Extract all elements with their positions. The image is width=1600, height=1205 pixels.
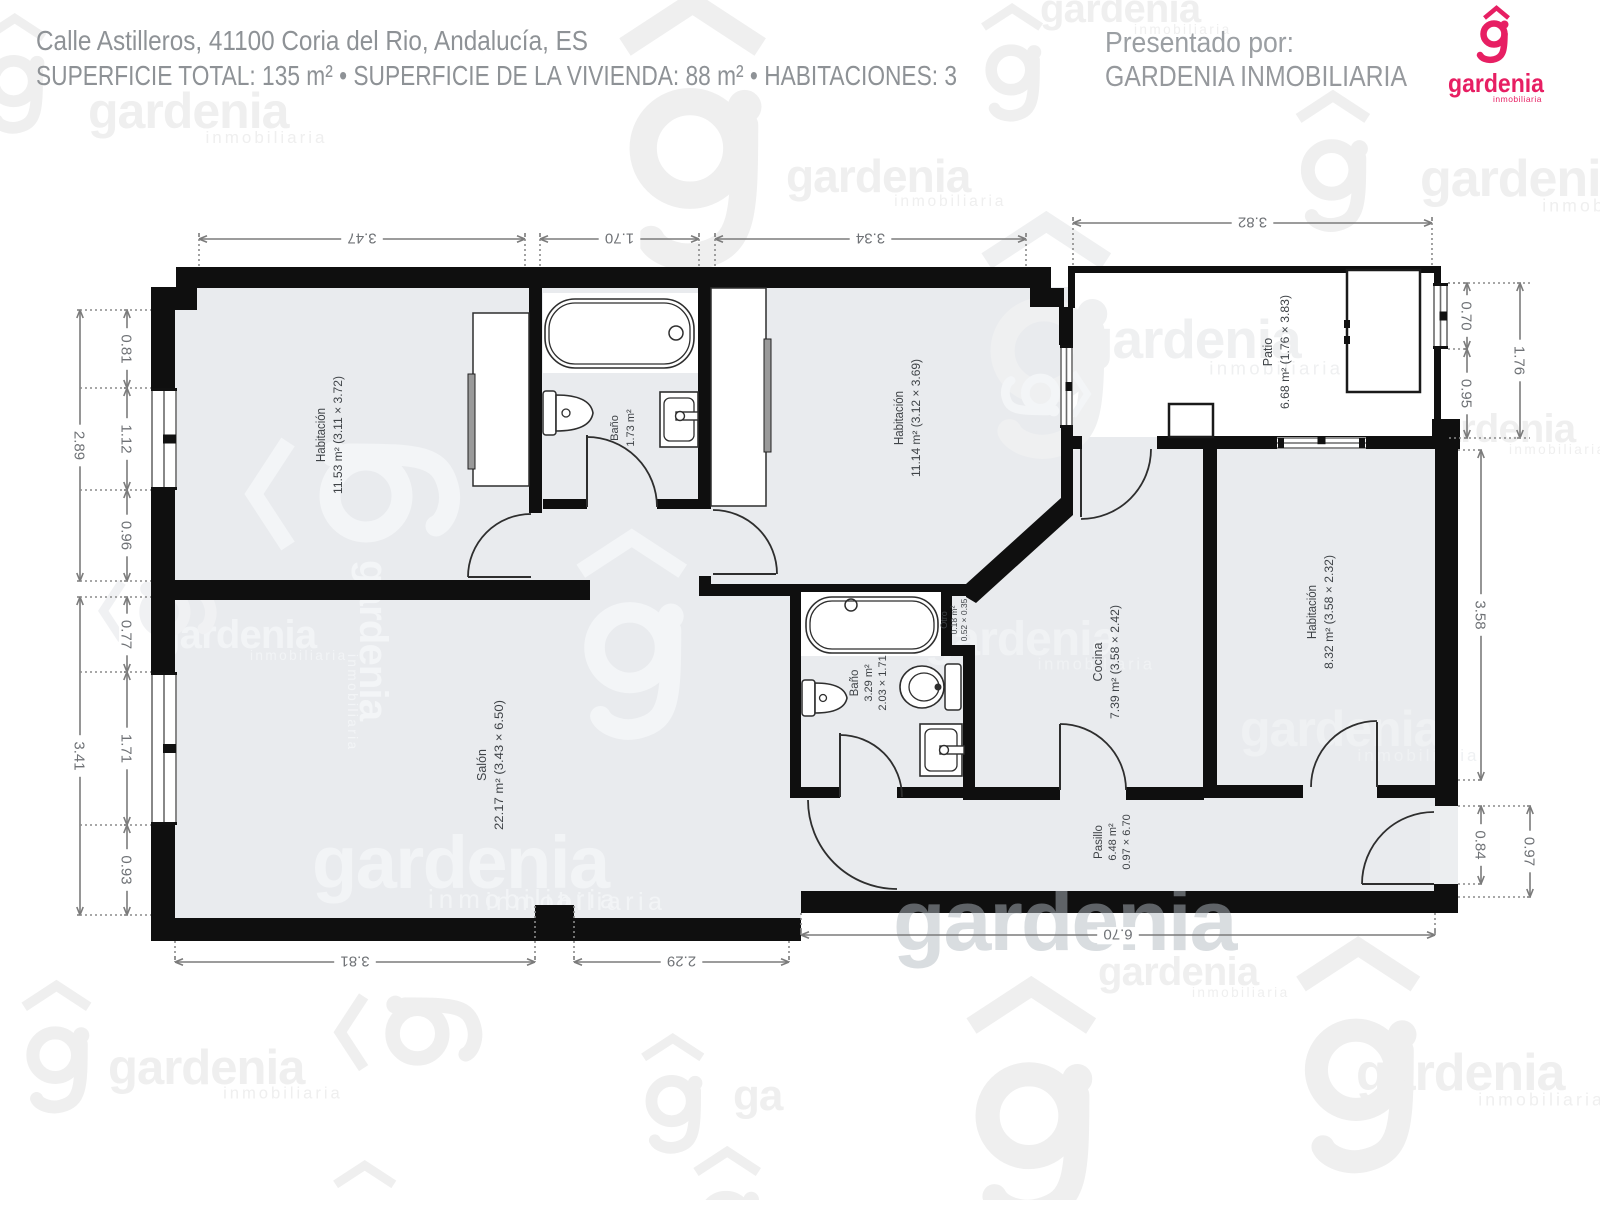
svg-text:0.52 × 0.35: 0.52 × 0.35 [959, 598, 969, 641]
svg-text:6.70: 6.70 [1103, 926, 1132, 943]
svg-text:1.12: 1.12 [118, 424, 135, 453]
svg-text:22.17 m² (3.43 × 6.50): 22.17 m² (3.43 × 6.50) [494, 700, 506, 830]
svg-text:1.73 m²: 1.73 m² [625, 409, 637, 447]
svg-text:Habitación: Habitación [314, 408, 328, 462]
svg-text:11.14 m² (3.12 × 3.69): 11.14 m² (3.12 × 3.69) [911, 359, 923, 477]
svg-text:3.58: 3.58 [1472, 600, 1489, 629]
svg-text:Calle Astilleros, 41100 Coria: Calle Astilleros, 41100 Coria del Rio, A… [36, 25, 588, 56]
svg-text:Baño: Baño [609, 415, 621, 441]
svg-text:1.71: 1.71 [118, 734, 135, 763]
svg-text:0.97 × 6.70: 0.97 × 6.70 [1121, 814, 1133, 869]
svg-text:inmobiliaria: inmobiliaria [1493, 94, 1542, 104]
svg-text:Cocina: Cocina [1091, 643, 1105, 682]
svg-text:8.32 m² (3.58 × 2.32): 8.32 m² (3.58 × 2.32) [1324, 555, 1336, 669]
svg-text:Presentado por:: Presentado por: [1105, 27, 1294, 59]
svg-text:3.81: 3.81 [340, 953, 369, 970]
svg-text:6.68 m² (1.76 × 3.83): 6.68 m² (1.76 × 3.83) [1280, 295, 1292, 409]
svg-text:0.84: 0.84 [1472, 830, 1489, 859]
svg-text:3.29 m²: 3.29 m² [863, 664, 875, 702]
svg-text:Patio: Patio [1261, 338, 1275, 367]
svg-text:1.76: 1.76 [1511, 346, 1528, 375]
svg-text:3.47: 3.47 [347, 230, 376, 247]
svg-text:0.97: 0.97 [1521, 837, 1538, 866]
svg-text:Habitación: Habitación [1305, 585, 1319, 639]
svg-text:2.29: 2.29 [667, 953, 696, 970]
svg-text:0.81: 0.81 [118, 334, 135, 363]
svg-text:0.95: 0.95 [1458, 379, 1475, 408]
svg-text:SUPERFICIE TOTAL: 135 m² • SUP: SUPERFICIE TOTAL: 135 m² • SUPERFICIE DE… [36, 60, 957, 91]
svg-text:inmobiliaria: inmobiliaria [428, 884, 620, 914]
svg-text:2.03 × 1.71: 2.03 × 1.71 [877, 655, 889, 710]
svg-text:6.48 m²: 6.48 m² [1107, 823, 1119, 861]
svg-text:2.89: 2.89 [71, 431, 88, 460]
svg-text:GARDENIA INMOBILIARIA: GARDENIA INMOBILIARIA [1105, 61, 1408, 93]
svg-text:3.82: 3.82 [1238, 214, 1267, 231]
svg-text:Baño: Baño [849, 670, 861, 697]
svg-text:3.41: 3.41 [71, 741, 88, 770]
svg-text:Otro: Otro [939, 611, 949, 629]
svg-text:3.34: 3.34 [856, 230, 885, 247]
svg-text:0.96: 0.96 [118, 521, 135, 550]
svg-text:Salón: Salón [475, 749, 489, 781]
svg-text:ga: ga [733, 1071, 784, 1120]
svg-text:1.70: 1.70 [605, 230, 634, 247]
svg-text:0.93: 0.93 [118, 855, 135, 884]
svg-text:0.77: 0.77 [118, 620, 135, 649]
svg-text:11.53 m² (3.11 × 3.72): 11.53 m² (3.11 × 3.72) [333, 376, 345, 494]
svg-text:7.39 m² (3.58 × 2.42): 7.39 m² (3.58 × 2.42) [1110, 605, 1122, 719]
svg-text:0.18 m²: 0.18 m² [949, 605, 959, 634]
svg-text:Pasillo: Pasillo [1093, 825, 1105, 859]
svg-text:0.70: 0.70 [1458, 301, 1475, 330]
svg-text:Habitación: Habitación [892, 391, 906, 445]
